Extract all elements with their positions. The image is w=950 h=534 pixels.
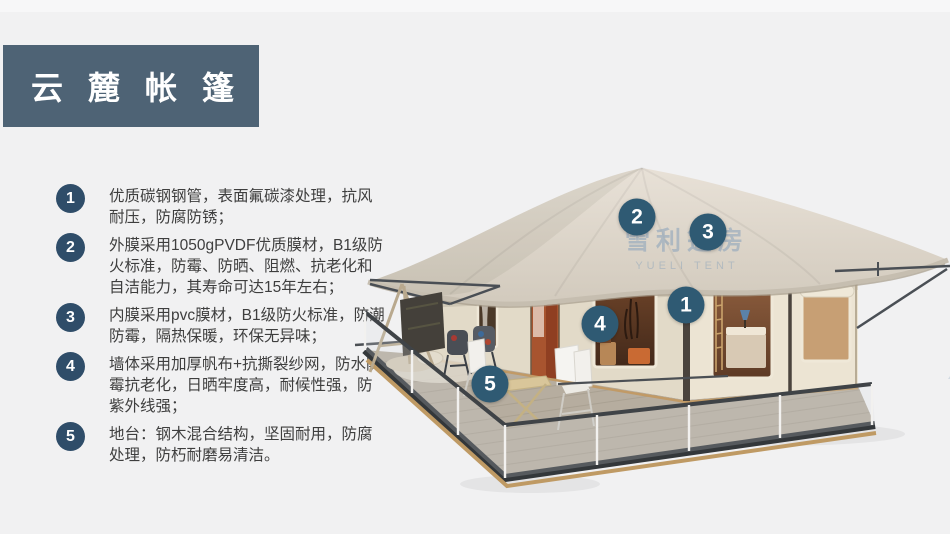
back-railing — [355, 323, 686, 382]
bedroom-window — [708, 280, 776, 378]
right-wall — [686, 276, 858, 400]
title-banner: 云麓帐篷 — [3, 45, 259, 127]
porch-wall — [415, 275, 686, 400]
deck-wood-base — [367, 360, 876, 486]
feature-list: 1 优质碳钢钢管，表面氟碳漆处理，抗风耐压，防腐防锈； 2 外膜采用1050gP… — [56, 186, 386, 473]
easel-canvas — [400, 292, 445, 356]
tent-render — [350, 134, 950, 534]
mid-rail — [558, 376, 728, 384]
feature-number-badge: 1 — [56, 184, 85, 213]
wall-base-strip — [424, 358, 858, 402]
pouf — [417, 351, 443, 365]
slide: 云麓帐篷 1 优质碳钢钢管，表面氟碳漆处理，抗风耐压，防腐防锈； 2 外膜采用1… — [0, 0, 950, 534]
feature-text: 内膜采用pvc膜材，B1级防火标准，防潮防霉，隔热保暖，环保无异味； — [109, 305, 386, 347]
ground-shadow — [635, 422, 905, 446]
feature-number-badge: 2 — [56, 233, 85, 262]
callout-number: 2 — [631, 205, 643, 229]
callout-marker: 4 — [582, 306, 619, 343]
deck — [350, 242, 950, 534]
porch-awning-rods — [470, 275, 656, 296]
brand-watermark: 雪利篷房 YUELI TENT — [592, 219, 782, 272]
awning-struts-left — [370, 280, 500, 304]
chairs-dark — [444, 326, 497, 377]
porch-window-small — [478, 293, 497, 347]
roof-canopy — [368, 168, 948, 307]
corner-post — [683, 234, 690, 401]
feature-item: 2 外膜采用1050gPVDF优质膜材，B1级防火标准，防霉、防晒、阻燃、抗老化… — [56, 235, 386, 298]
feature-text: 优质碳钢钢管，表面氟碳漆处理，抗风耐压，防腐防锈； — [109, 186, 386, 228]
watermark-en-text: YUELI TENT — [592, 260, 782, 272]
deck-fascia — [365, 350, 875, 478]
window-valance — [708, 280, 776, 293]
callout-marker: 2 — [619, 199, 656, 236]
feature-text: 地台：钢木混合结构，坚固耐用，防腐处理，防朽耐磨易清洁。 — [109, 424, 386, 466]
folding-table — [500, 376, 551, 426]
roof-fascia — [368, 260, 948, 304]
front-railing — [365, 312, 875, 478]
feature-item: 5 地台：钢木混合结构，坚固耐用，防腐处理，防朽耐磨易清洁。 — [56, 424, 386, 466]
feature-item: 1 优质碳钢钢管，表面氟碳漆处理，抗风耐压，防腐防锈； — [56, 186, 386, 228]
feature-number-badge: 4 — [56, 352, 85, 381]
awning-struts-right — [835, 262, 950, 328]
feature-text: 外膜采用1050gPVDF优质膜材，B1级防火标准，防霉、防晒、阻燃、抗老化和自… — [109, 235, 386, 298]
railing-top-rail — [365, 312, 872, 425]
callout-number: 5 — [484, 372, 496, 396]
shaded-window — [800, 285, 854, 361]
callout-marker: 1 — [668, 287, 705, 324]
callout-number: 3 — [702, 220, 714, 244]
porch-window-main — [592, 280, 658, 367]
feature-number-badge: 5 — [56, 422, 85, 451]
porch-furniture — [370, 284, 594, 430]
feature-item: 3 内膜采用pvc膜材，B1级防火标准，防潮防霉，隔热保暖，环保无异味； — [56, 305, 386, 347]
feature-number-badge: 3 — [56, 303, 85, 332]
railing-glass-posts — [365, 312, 872, 478]
porch-door — [531, 283, 559, 379]
ground-shadow-front — [460, 475, 600, 493]
page-title: 云麓帐篷 — [31, 63, 259, 109]
white-chairs — [464, 339, 594, 430]
callout-marker: 3 — [690, 214, 727, 251]
feature-item: 4 墙体采用加厚帆布+抗撕裂纱网，防水防霉抗老化，日晒牢度高，耐候性强，防紫外线… — [56, 354, 386, 417]
watermark-cn-text: 雪利篷房 — [592, 221, 782, 257]
window-valance — [592, 280, 658, 292]
rug — [394, 357, 486, 383]
callout-number: 1 — [680, 293, 692, 317]
callout-number: 4 — [594, 312, 606, 336]
rug-small — [386, 356, 434, 372]
feature-text: 墙体采用加厚帆布+抗撕裂纱网，防水防霉抗老化，日晒牢度高，耐候性强，防紫外线强； — [109, 354, 386, 417]
callout-marker: 5 — [472, 366, 509, 403]
white-panel — [555, 345, 580, 385]
